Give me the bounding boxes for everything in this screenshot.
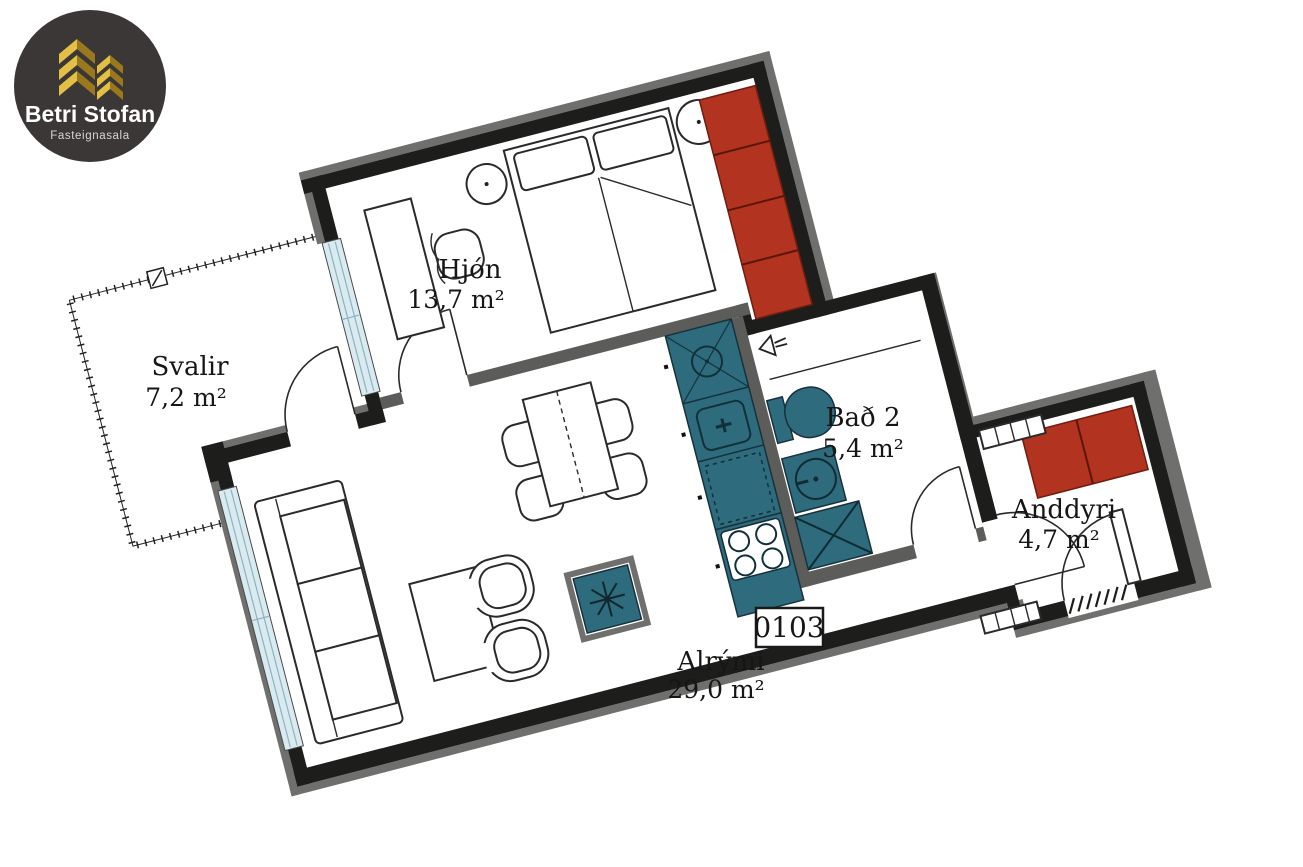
- unit-number: 0103: [753, 611, 824, 644]
- logo-subtitle: Fasteignasala: [50, 130, 129, 142]
- room-label-bad2: Bað 2 5,4 m²: [822, 403, 903, 463]
- room-name: Bað 2: [825, 403, 900, 433]
- room-name: Hjón: [438, 255, 501, 285]
- room-area: 29,0 m²: [667, 675, 764, 704]
- bedroom-window: [322, 238, 380, 396]
- room-label-anddyri: Anddyri 4,7 m²: [1011, 495, 1116, 554]
- logo: Betri Stofan Fasteignasala: [14, 10, 166, 162]
- desk: [364, 198, 444, 339]
- room-name: Alrými: [676, 647, 764, 677]
- room-name: Anddyri: [1011, 495, 1116, 525]
- dining-table-set: [494, 375, 650, 524]
- room-name: Svalir: [151, 352, 229, 382]
- fireplace-stove: [563, 555, 651, 643]
- room-area: 4,7 m²: [1018, 525, 1099, 554]
- room-area: 13,7 m²: [407, 285, 504, 314]
- room-area: 5,4 m²: [822, 434, 903, 463]
- unit-number-badge: 0103: [753, 608, 824, 647]
- shower-head-symbol: [757, 332, 789, 358]
- plan-rotated-group: [53, 0, 1212, 846]
- room-area: 7,2 m²: [145, 383, 226, 412]
- room-label-svalir: Svalir 7,2 m²: [145, 352, 229, 412]
- logo-title: Betri Stofan: [25, 101, 155, 127]
- floor-plan-drawing: Hjón 13,7 m² Svalir 7,2 m² Bað 2 5,4 m² …: [0, 0, 1303, 867]
- floor-plan-page: Hjón 13,7 m² Svalir 7,2 m² Bað 2 5,4 m² …: [0, 0, 1303, 867]
- room-label-alrymi: Alrými 29,0 m²: [667, 647, 764, 704]
